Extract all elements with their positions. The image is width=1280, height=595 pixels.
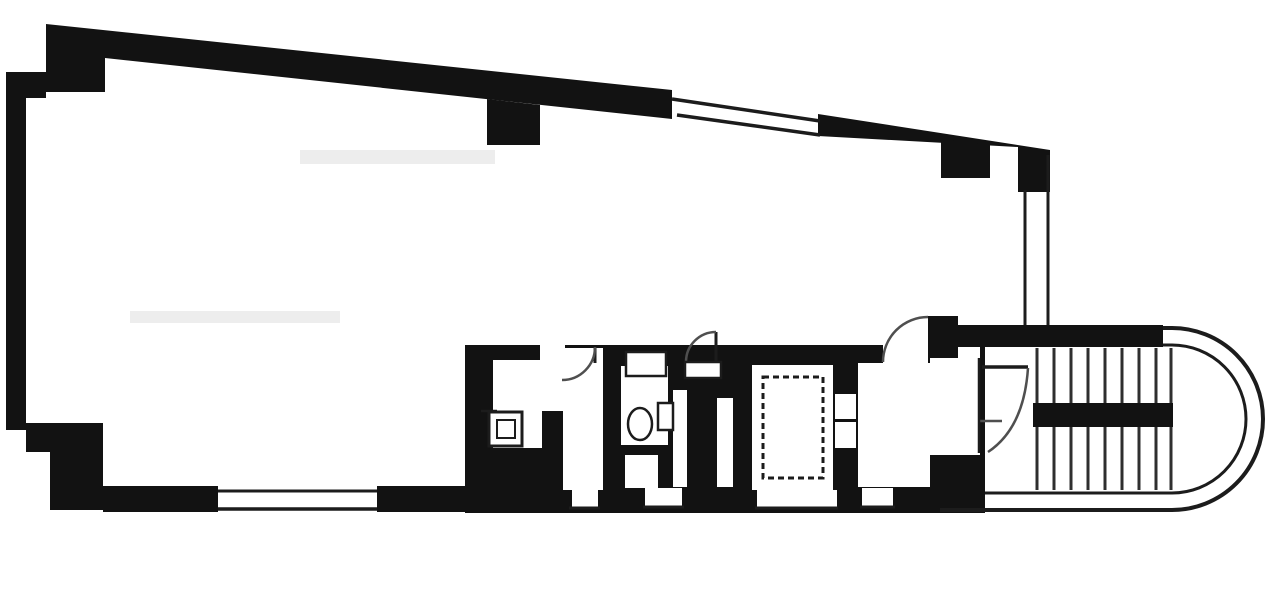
pantry-sink-basin xyxy=(497,420,515,438)
bottom-left-corner-step-b xyxy=(50,452,103,510)
stair-landing-bar xyxy=(1033,403,1173,427)
elevator-cage-outline xyxy=(763,377,823,478)
elevator-door-notch-b xyxy=(835,422,856,448)
wc-toilet-bowl xyxy=(628,408,652,440)
hall-door-stub-wall xyxy=(928,316,958,358)
faint-smudge-upper xyxy=(300,150,495,164)
hall-door-opening xyxy=(883,345,928,364)
mid-room-window-notch xyxy=(572,488,598,507)
stair-vestibule-notch xyxy=(958,347,980,359)
floor-plan-svg xyxy=(0,0,1280,595)
wc-window-notch xyxy=(645,488,682,507)
faint-smudge-lower xyxy=(130,311,340,323)
floor-plan-screenshot xyxy=(0,0,1280,595)
pantry-passage xyxy=(540,345,565,411)
elevator-hall xyxy=(858,363,930,487)
bottom-left-corner-step-a xyxy=(26,423,103,452)
pipe-shaft-a xyxy=(673,390,687,487)
left-wall xyxy=(6,72,26,430)
left-wall-top-step xyxy=(26,72,46,98)
wc-counter xyxy=(626,352,666,376)
elevator-door-notch-a xyxy=(835,394,856,419)
stair-vestibule xyxy=(930,358,980,455)
wc-alcove xyxy=(625,455,658,488)
bottom-wall-left xyxy=(103,486,218,512)
under-shaft-window xyxy=(757,490,837,507)
top-wall-pier-left xyxy=(487,99,540,145)
top-wall-pier-right xyxy=(941,139,990,178)
wc-cistern xyxy=(658,403,673,430)
pipe-shaft-b xyxy=(717,398,733,487)
stairwell-top-wall xyxy=(958,325,1163,347)
basin-pedestal xyxy=(685,362,721,378)
mid-room xyxy=(563,348,603,490)
bottom-wall-mid xyxy=(377,486,466,512)
hall-window-notch xyxy=(862,488,893,506)
